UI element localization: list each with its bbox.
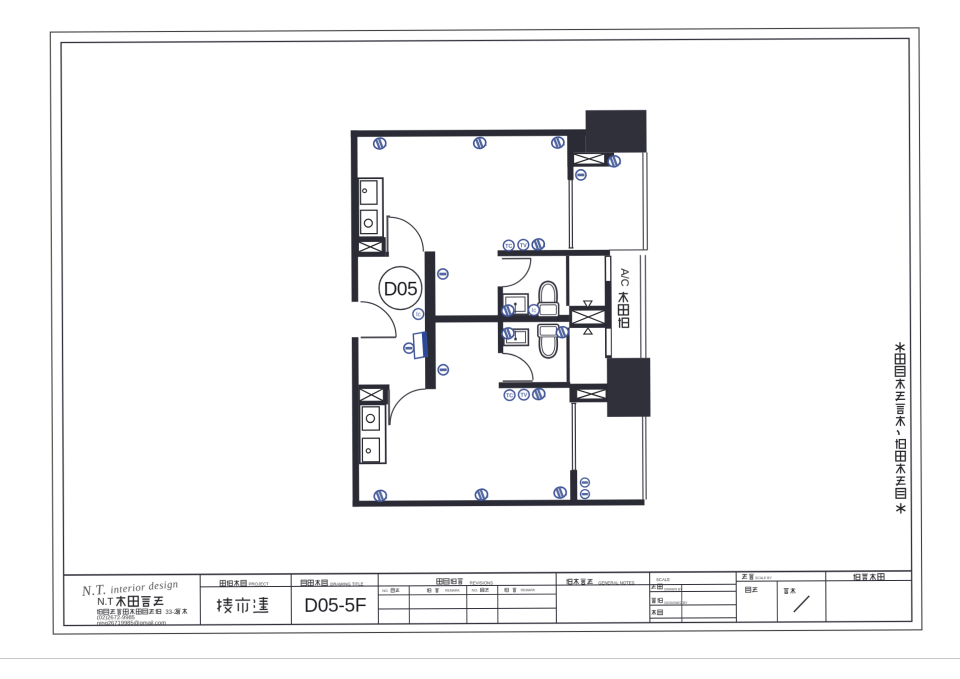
svg-text:SCALE: SCALE — [656, 577, 670, 582]
svg-text:PROJECT: PROJECT — [249, 581, 269, 586]
svg-text:SCALE BY: SCALE BY — [755, 576, 772, 580]
svg-text:Ic: Ic — [532, 308, 537, 314]
svg-text:REMARK: REMARK — [521, 588, 536, 592]
svg-text:TC: TC — [506, 393, 513, 399]
svg-text:REVISIONS: REVISIONS — [470, 580, 494, 585]
svg-text:D05-5F: D05-5F — [304, 595, 366, 616]
svg-text:N.T: N.T — [97, 597, 113, 608]
svg-text:DESIGNED BY: DESIGNED BY — [664, 601, 688, 605]
svg-text:TV: TV — [520, 243, 527, 249]
svg-text:ning26719985@gmail.com: ning26719985@gmail.com — [97, 620, 166, 626]
svg-text:33-2: 33-2 — [165, 610, 178, 616]
svg-text:NO.: NO. — [472, 589, 478, 593]
svg-text:DRAWING TITLE: DRAWING TITLE — [330, 581, 364, 586]
svg-text:REMARK: REMARK — [445, 589, 460, 593]
svg-text:DRAWN BY: DRAWN BY — [664, 587, 683, 591]
svg-text:TV: TV — [520, 393, 527, 399]
svg-text:A/C: A/C — [618, 268, 630, 286]
svg-text:Ic: Ic — [416, 312, 421, 318]
svg-text:TC: TC — [505, 244, 512, 250]
svg-text:NO.: NO. — [382, 589, 388, 593]
svg-text:D05: D05 — [384, 279, 418, 300]
svg-text:GENERAL NOTES: GENERAL NOTES — [598, 580, 635, 585]
